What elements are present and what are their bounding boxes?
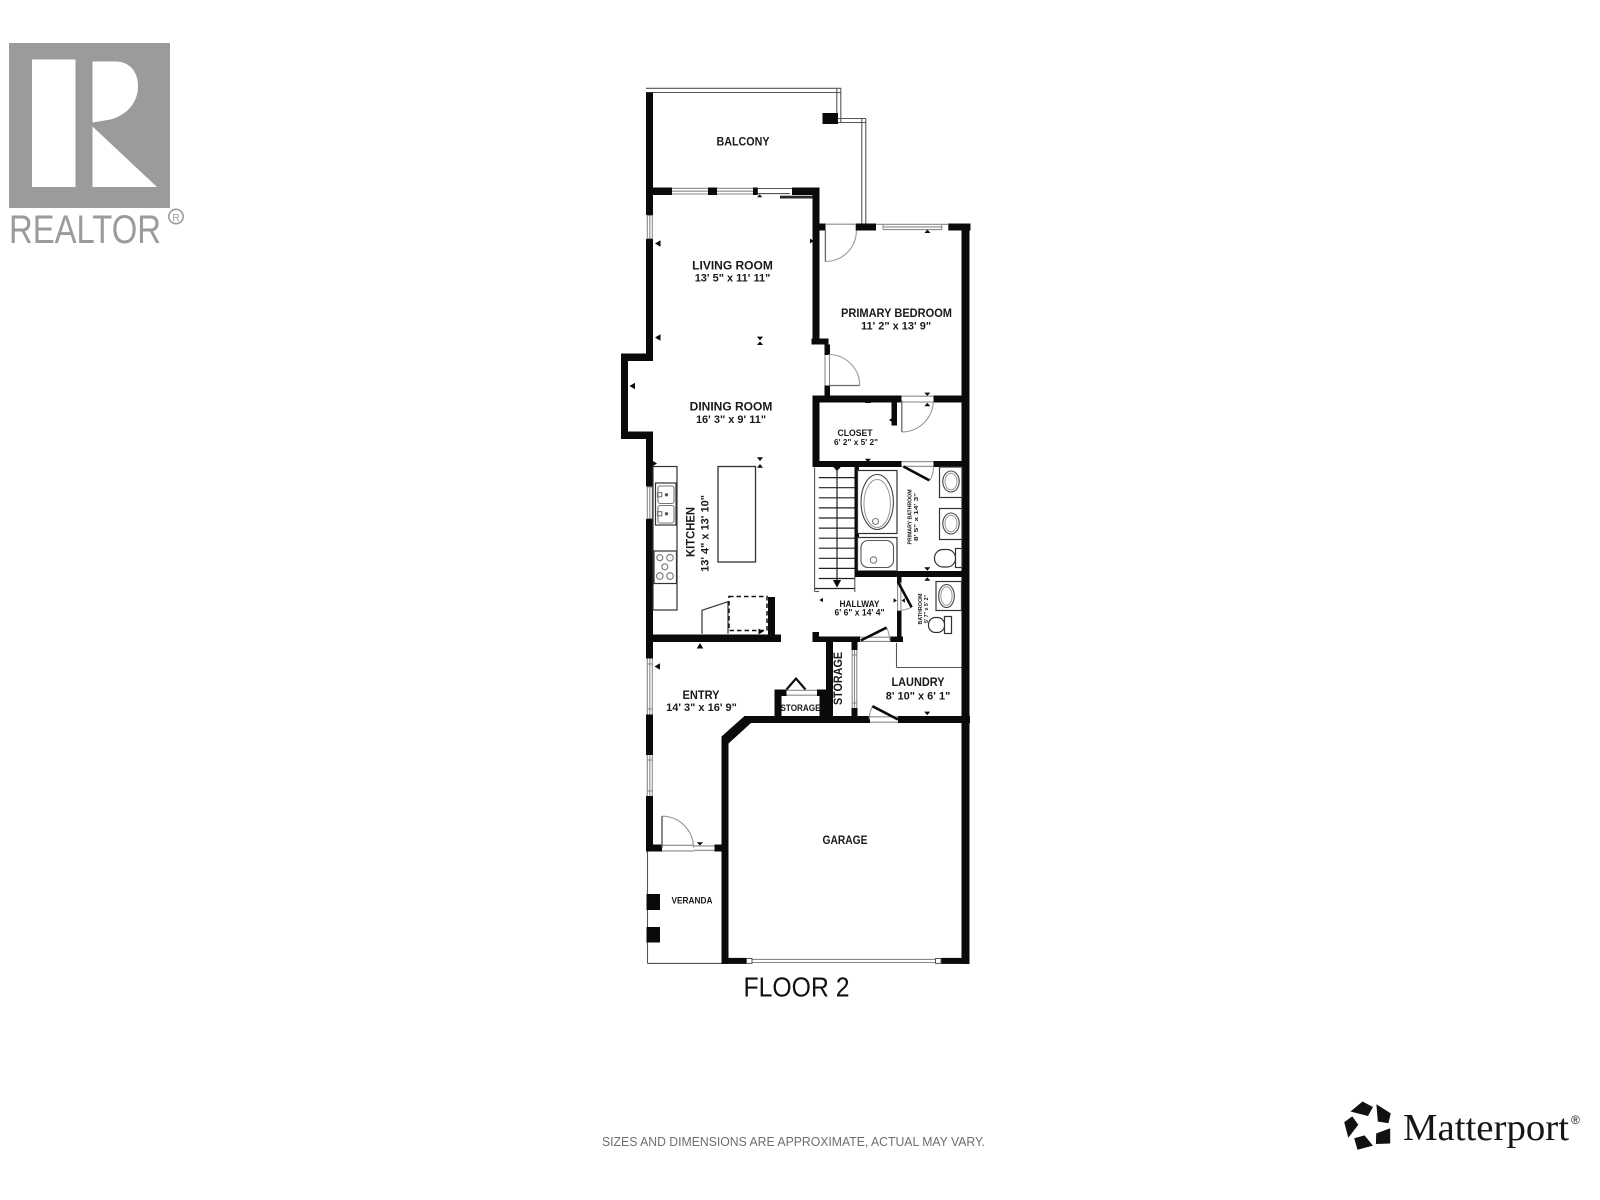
svg-text:®: ® bbox=[1571, 1113, 1580, 1127]
svg-text:6' 2" x 5' 2": 6' 2" x 5' 2" bbox=[834, 438, 878, 447]
svg-text:FLOOR 2: FLOOR 2 bbox=[744, 972, 850, 1003]
svg-text:13' 5" x 11' 11": 13' 5" x 11' 11" bbox=[695, 273, 771, 285]
svg-text:KITCHEN: KITCHEN bbox=[684, 507, 698, 557]
svg-text:16' 3" x 9' 11": 16' 3" x 9' 11" bbox=[696, 414, 766, 426]
svg-text:14' 3" x 16' 9": 14' 3" x 16' 9" bbox=[666, 702, 737, 714]
svg-text:DINING ROOM: DINING ROOM bbox=[690, 400, 773, 414]
svg-text:PRIMARY BATHROOM: PRIMARY BATHROOM bbox=[908, 489, 914, 544]
svg-text:LAUNDRY: LAUNDRY bbox=[892, 675, 945, 689]
svg-text:8' 10" x 6' 1": 8' 10" x 6' 1" bbox=[886, 691, 951, 703]
svg-text:5' 7" x 5' 2": 5' 7" x 5' 2" bbox=[924, 595, 930, 623]
svg-text:REALTOR: REALTOR bbox=[9, 208, 161, 252]
svg-text:8' 5" x 14' 3": 8' 5" x 14' 3" bbox=[914, 492, 920, 541]
svg-text:ENTRY: ENTRY bbox=[683, 688, 720, 702]
svg-text:13' 4" x 13' 10": 13' 4" x 13' 10" bbox=[700, 495, 712, 572]
svg-text:VERANDA: VERANDA bbox=[672, 896, 713, 907]
svg-text:11' 2" x 13' 9": 11' 2" x 13' 9" bbox=[861, 321, 931, 333]
svg-text:CLOSET: CLOSET bbox=[838, 428, 873, 438]
svg-text:Matterport: Matterport bbox=[1403, 1107, 1569, 1149]
svg-text:LIVING ROOM: LIVING ROOM bbox=[692, 259, 773, 273]
svg-text:PRIMARY BEDROOM: PRIMARY BEDROOM bbox=[841, 306, 952, 320]
svg-text:GARAGE: GARAGE bbox=[823, 833, 868, 847]
svg-text:SIZES AND DIMENSIONS ARE APPRO: SIZES AND DIMENSIONS ARE APPROXIMATE, AC… bbox=[602, 1134, 985, 1149]
svg-text:6' 6" x 14' 4": 6' 6" x 14' 4" bbox=[835, 608, 885, 618]
svg-text:R: R bbox=[172, 213, 179, 224]
svg-text:STORAGE: STORAGE bbox=[831, 652, 845, 705]
svg-text:BALCONY: BALCONY bbox=[717, 135, 770, 149]
svg-text:STORAGE: STORAGE bbox=[781, 703, 821, 713]
